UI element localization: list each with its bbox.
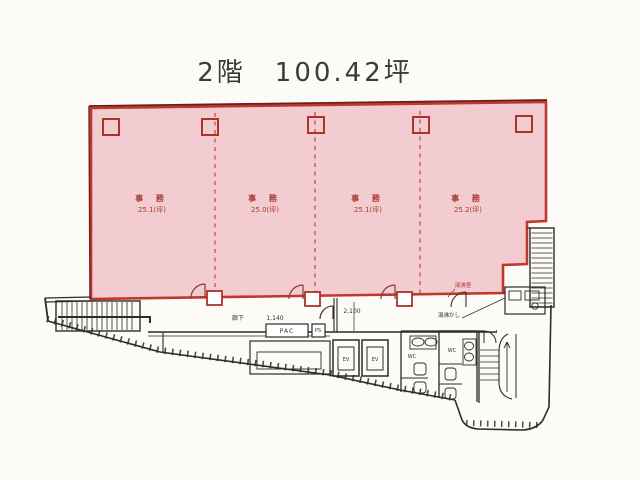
stair-curved-wall xyxy=(499,334,512,399)
bay-2-name: 事 務 xyxy=(248,193,282,203)
wc-men xyxy=(401,331,439,398)
sink xyxy=(465,342,474,350)
wc-men-label: WC xyxy=(408,354,417,360)
corridor-width: 1,140 xyxy=(266,315,283,322)
exterior-stair-right xyxy=(527,228,554,307)
toilet xyxy=(445,368,456,380)
elevator-label: EV xyxy=(372,357,379,363)
kitchenette-label: 湯沸室 xyxy=(455,281,472,289)
hall-wall xyxy=(334,298,337,332)
bay-1-area: 25.1(坪) xyxy=(138,206,166,214)
floorplan-page: 2階 100.42坪 xyxy=(0,0,640,480)
sloped-outer-wall xyxy=(48,321,455,400)
toilet xyxy=(414,363,426,375)
stair-direction-arrow xyxy=(504,342,510,392)
ps-label: PS xyxy=(315,328,321,334)
service-room xyxy=(503,287,545,314)
stair-bump-outline xyxy=(455,305,551,430)
bay-3-area: 25.1(坪) xyxy=(354,206,382,214)
kitchenette-note: 湯沸かし xyxy=(438,311,460,319)
wc-women-label: WC xyxy=(448,348,457,354)
store-room xyxy=(250,341,330,374)
stair-treads xyxy=(480,350,499,380)
hall-door xyxy=(320,306,333,319)
bay-4-name: 事 務 xyxy=(451,193,485,203)
floorplan-drawing: 事 務 25.1(坪) 事 務 25.0(坪) 事 務 25.1(坪) 事 務 … xyxy=(0,0,640,480)
hall-width: 2,100 xyxy=(343,308,360,315)
corridor-label: 廊下 xyxy=(232,314,244,322)
bay-3-name: 事 務 xyxy=(351,193,385,203)
sink xyxy=(465,353,474,361)
outer-wall-left xyxy=(89,106,90,299)
bay-4-area: 25.2(坪) xyxy=(454,206,482,214)
elevators xyxy=(333,340,388,376)
tenant-area: 事 務 25.1(坪) 事 務 25.0(坪) 事 務 25.1(坪) 事 務 … xyxy=(89,100,547,307)
bay-2-area: 25.0(坪) xyxy=(251,206,279,214)
sink xyxy=(425,338,437,346)
column xyxy=(207,291,222,305)
elevator-label: EV xyxy=(343,357,350,363)
bay-1-name: 事 務 xyxy=(135,193,169,203)
column xyxy=(305,292,320,306)
sink xyxy=(412,338,424,346)
stair-door xyxy=(484,331,496,343)
wc-women xyxy=(439,331,477,402)
note-leader xyxy=(462,298,505,318)
pac-label: PAC xyxy=(280,328,294,335)
column xyxy=(397,292,412,306)
